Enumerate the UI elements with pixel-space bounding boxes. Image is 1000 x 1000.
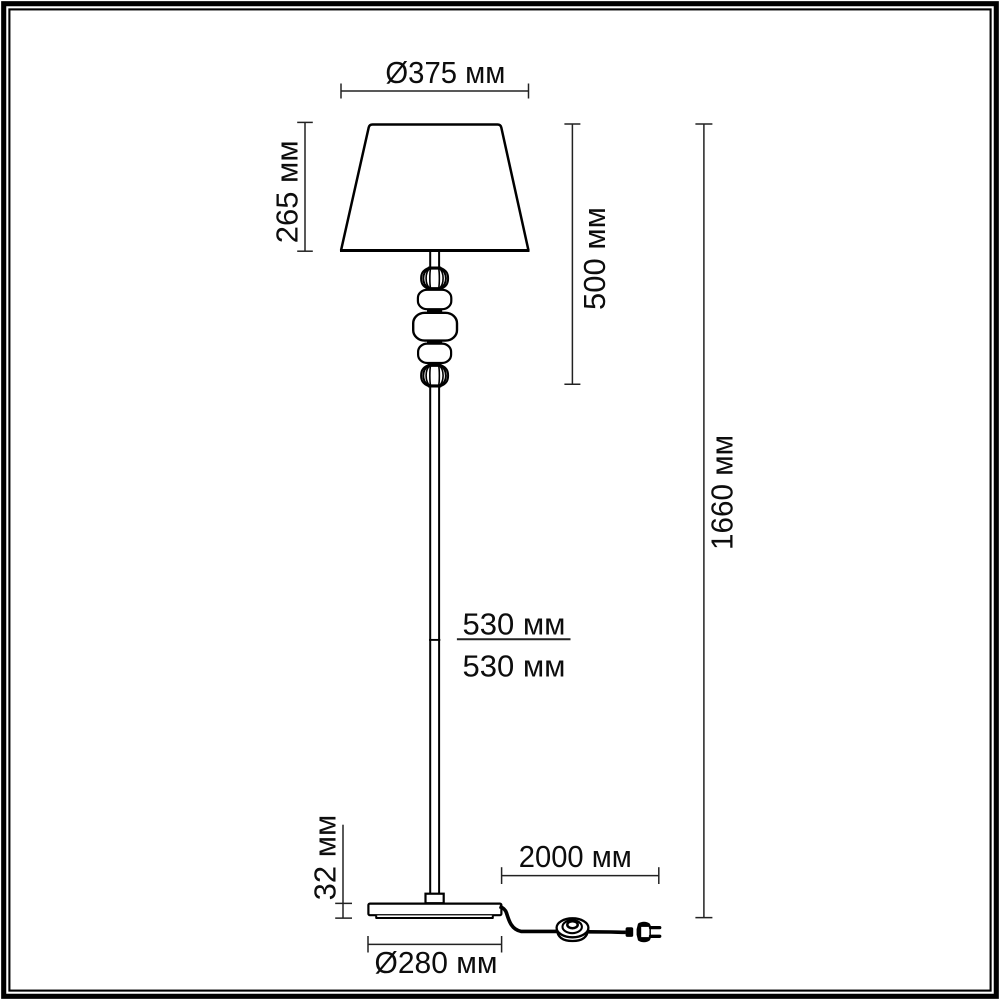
- svg-text:265 мм: 265 мм: [270, 140, 305, 243]
- svg-text:500 мм: 500 мм: [577, 207, 612, 310]
- svg-text:530 мм: 530 мм: [463, 648, 566, 683]
- svg-text:Ø280 мм: Ø280 мм: [375, 945, 498, 980]
- svg-text:32 мм: 32 мм: [308, 815, 343, 901]
- svg-text:2000 мм: 2000 мм: [519, 839, 632, 874]
- svg-text:Ø375 мм: Ø375 мм: [385, 55, 505, 90]
- svg-text:530 мм: 530 мм: [463, 607, 566, 642]
- svg-text:1660 мм: 1660 мм: [705, 435, 740, 550]
